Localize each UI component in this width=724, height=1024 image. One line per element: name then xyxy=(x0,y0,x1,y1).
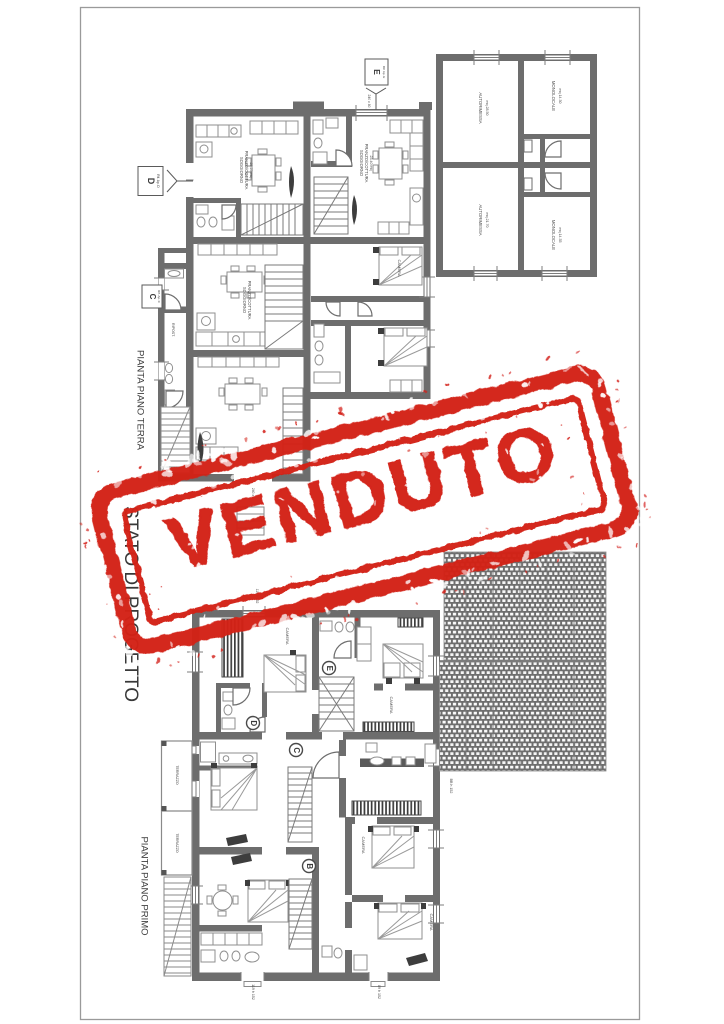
svg-text:mq 14.35: mq 14.35 xyxy=(558,228,562,243)
svg-text:MONOLOCALE: MONOLOCALE xyxy=(551,81,556,111)
svg-text:AUTORIMESSA: AUTORIMESSA xyxy=(478,204,483,235)
svg-text:mq 21.70: mq 21.70 xyxy=(485,213,489,228)
svg-text:PRANZO/COTTURA: PRANZO/COTTURA xyxy=(244,151,249,190)
svg-text:PRANZO/COTTURA: PRANZO/COTTURA xyxy=(364,144,369,183)
svg-text:RIPOST.: RIPOST. xyxy=(171,323,175,337)
svg-text:MONOLOCALE: MONOLOCALE xyxy=(551,220,556,250)
svg-text:BB h 152: BB h 152 xyxy=(449,779,453,794)
svg-text:CAMERA: CAMERA xyxy=(285,627,290,644)
svg-text:CAMERA: CAMERA xyxy=(361,836,366,853)
svg-text:AUTORIMESSA: AUTORIMESSA xyxy=(478,92,483,123)
svg-text:119 h 152: 119 h 152 xyxy=(251,984,255,1000)
svg-text:PRANZO/COTTURA: PRANZO/COTTURA xyxy=(247,281,252,320)
svg-text:TERRAZZO: TERRAZZO xyxy=(175,833,179,853)
svg-text:D: D xyxy=(249,720,258,726)
svg-text:E: E xyxy=(325,666,334,672)
svg-text:D: D xyxy=(146,178,156,185)
svg-text:23.25 mq: 23.25 mq xyxy=(249,163,253,178)
svg-text:C: C xyxy=(292,747,301,753)
svg-text:Rif. Ap. E: Rif. Ap. E xyxy=(382,66,386,79)
svg-text:mq 14.30: mq 14.30 xyxy=(558,89,562,104)
svg-text:E: E xyxy=(372,69,382,75)
svg-text:SOGGIORNO: SOGGIORNO xyxy=(359,150,364,177)
svg-text:PIANTA PIANO TERRA: PIANTA PIANO TERRA xyxy=(135,350,146,451)
svg-text:Rif. Ap. C: Rif. Ap. C xyxy=(157,290,161,304)
svg-text:C: C xyxy=(148,294,157,300)
svg-text:mq 28.50: mq 28.50 xyxy=(485,101,489,116)
svg-text:PIANTA PIANO PRIMO: PIANTA PIANO PRIMO xyxy=(139,836,150,935)
svg-text:SOGGIORNO: SOGGIORNO xyxy=(242,287,247,314)
svg-text:CAMERA: CAMERA xyxy=(429,913,434,930)
svg-text:240 x 80: 240 x 80 xyxy=(367,94,371,107)
svg-text:23.40 mq: 23.40 mq xyxy=(369,156,373,171)
svg-text:89 h 152: 89 h 152 xyxy=(377,985,381,999)
svg-text:SOGGIORNO: SOGGIORNO xyxy=(239,157,244,184)
svg-text:TERRAZZO: TERRAZZO xyxy=(175,765,179,785)
svg-text:CAMERA: CAMERA xyxy=(397,259,402,276)
svg-text:B: B xyxy=(305,863,314,869)
svg-text:CAMERA: CAMERA xyxy=(389,696,394,713)
svg-text:Rif. Ap. D: Rif. Ap. D xyxy=(156,174,160,188)
